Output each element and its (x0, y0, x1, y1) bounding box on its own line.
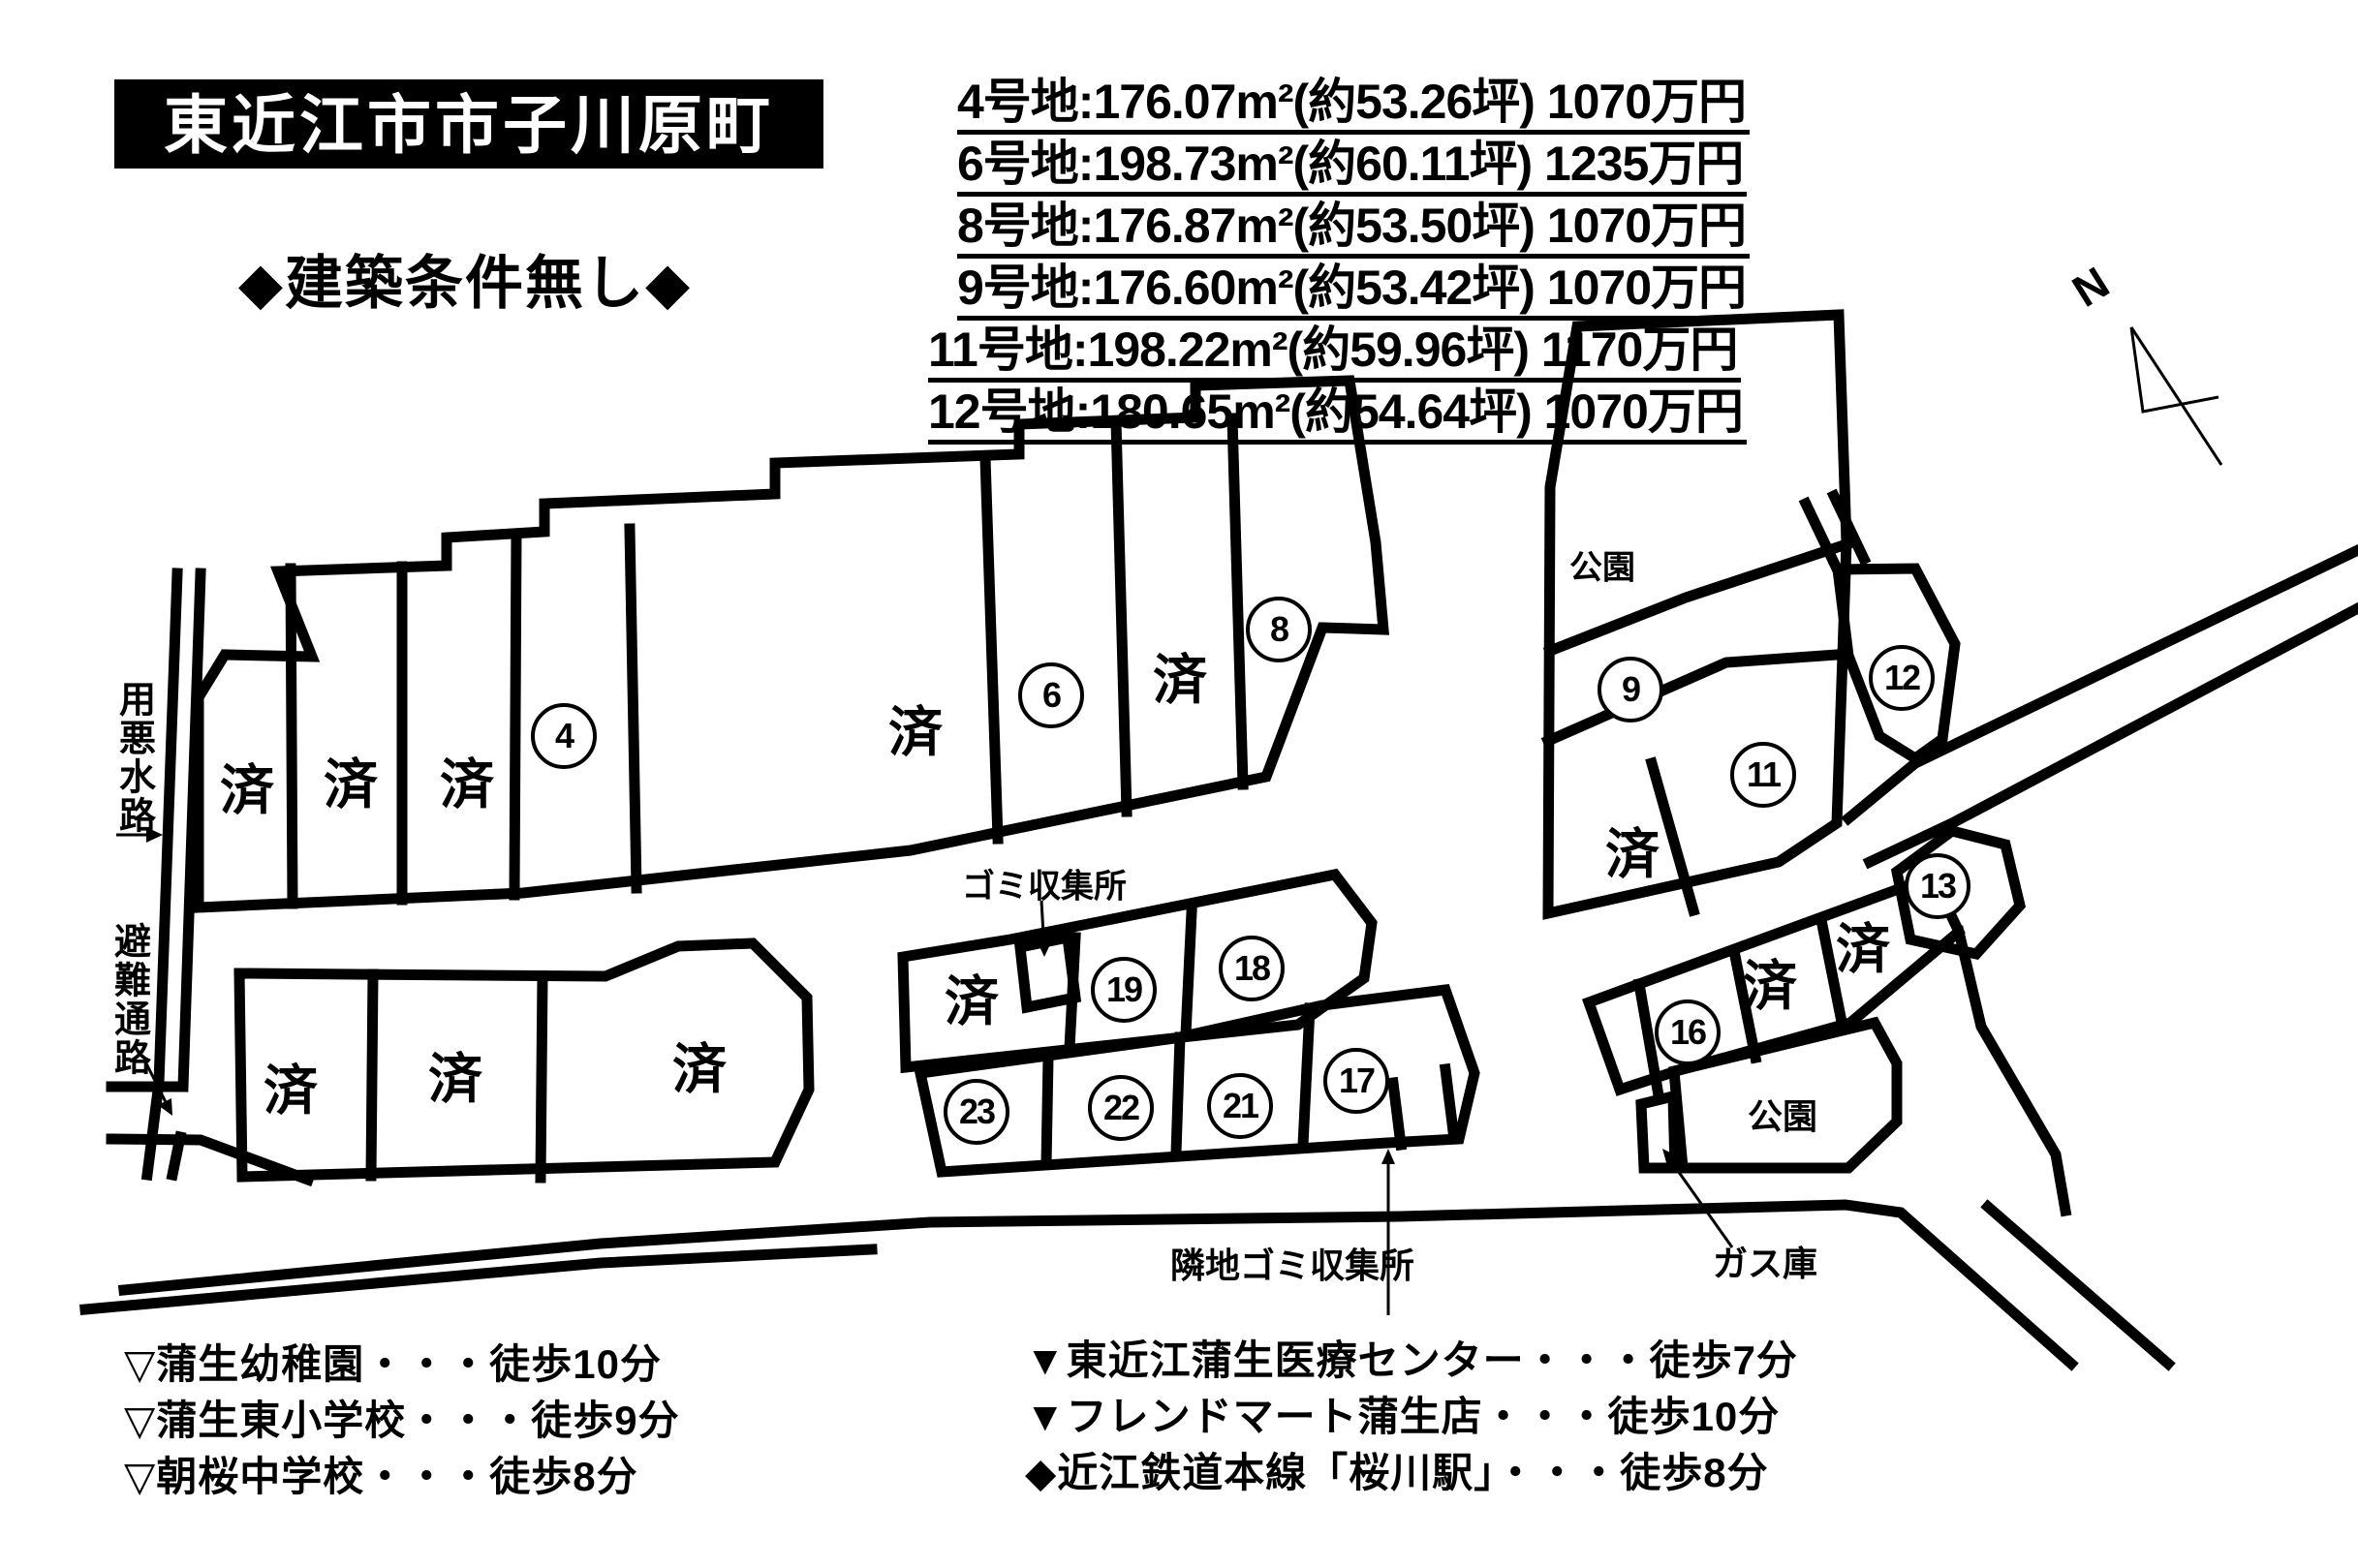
footer-distance-item: ▽蒲生幼稚園・・・徒歩10分 (124, 1337, 680, 1393)
footer-right-distances: ▼東近江蒲生医療センター・・・徒歩7分▼フレンドマート蒲生店・・・徒歩10分◆近… (1025, 1333, 1798, 1501)
plot-number-8: 8 (1246, 597, 1312, 662)
plot-sold-mark: 済 (264, 1048, 318, 1126)
price-list: 4号地:176.07m²(約53.26坪) 1070万円6号地:198.73m²… (957, 74, 1750, 446)
plot-sold-mark: 済 (324, 742, 378, 820)
plot-sold-mark: 済 (1153, 637, 1207, 716)
area-label: ゴミ収集所 (962, 860, 1127, 907)
price-line: 6号地:198.73m²(約60.11坪) 1235万円 (957, 136, 1747, 197)
footer-distance-item: ▼東近江蒲生医療センター・・・徒歩7分 (1025, 1333, 1798, 1389)
plot-number-16: 16 (1655, 999, 1721, 1065)
plot-number-9: 9 (1598, 657, 1663, 723)
plot-sold-mark: 済 (428, 1036, 482, 1115)
plot-number-12: 12 (1869, 645, 1935, 711)
north-arrow-icon (2131, 327, 2221, 465)
plot-number-6: 6 (1018, 662, 1084, 728)
area-label: 公園 (1569, 541, 1635, 589)
footer-left-distances: ▽蒲生幼稚園・・・徒歩10分▽蒲生東小学校・・・徒歩9分▽朝桜中学校・・・徒歩8… (124, 1337, 680, 1505)
plot-number-19: 19 (1091, 957, 1157, 1023)
footer-distance-item: ▽蒲生東小学校・・・徒歩9分 (124, 1393, 680, 1449)
price-line: 11号地:198.22m²(約59.96坪) 1170万円 (928, 322, 1741, 383)
page-title: 東近江市市子川原町 (114, 79, 823, 169)
plot-number-11: 11 (1730, 742, 1796, 808)
area-label: 隣地ゴミ収集所 (1170, 1238, 1414, 1288)
footer-distance-item: ◆近江鉄道本線「桜川駅」・・・徒歩8分 (1025, 1445, 1798, 1501)
plot-sold-mark: 済 (945, 959, 999, 1037)
side-label: 用悪水路 (108, 680, 161, 835)
price-line: 9号地:176.60m²(約53.42坪) 1070万円 (957, 260, 1750, 321)
area-label: ガス庫 (1713, 1236, 1817, 1286)
price-line: 8号地:176.87m²(約53.50坪) 1070万円 (957, 198, 1750, 259)
plot-number-18: 18 (1219, 936, 1285, 1001)
plot-sold-mark: 済 (1743, 943, 1797, 1022)
plot-number-17: 17 (1323, 1048, 1389, 1114)
plot-number-22: 22 (1088, 1075, 1154, 1141)
footer-distance-item: ▼フレンドマート蒲生店・・・徒歩10分 (1025, 1389, 1798, 1445)
plot-number-23: 23 (944, 1079, 1009, 1145)
plot-number-21: 21 (1207, 1073, 1273, 1139)
plot-sold-mark: 済 (888, 690, 943, 768)
price-line: 4号地:176.07m²(約53.26坪) 1070万円 (957, 74, 1750, 135)
plot-number-13: 13 (1905, 853, 1970, 919)
price-line: 12号地:180.65m²(約54.64坪) 1070万円 (928, 384, 1747, 445)
side-label: 避難通路 (103, 922, 156, 1077)
page-title-text: 東近江市市子川原町 (164, 89, 774, 161)
plot-sold-mark: 済 (672, 1027, 727, 1105)
plot-sold-mark: 済 (440, 742, 494, 820)
plot-sold-mark: 済 (1605, 812, 1660, 890)
plot-boundaries (85, 315, 2358, 1364)
subtitle-no-building-conditions: ◆建築条件無し◆ (165, 236, 765, 321)
area-label: 公園 (1748, 1089, 1817, 1139)
plot-sold-mark: 済 (220, 748, 274, 826)
footer-distance-item: ▽朝桜中学校・・・徒歩8分 (124, 1449, 680, 1505)
plot-sold-mark: 済 (1836, 907, 1890, 985)
plot-number-4: 4 (531, 703, 597, 769)
land-lot-flyer: 東近江市市子川原町 ◆建築条件無し◆ 4号地:176.07m²(約53.26坪)… (0, 0, 2358, 1568)
